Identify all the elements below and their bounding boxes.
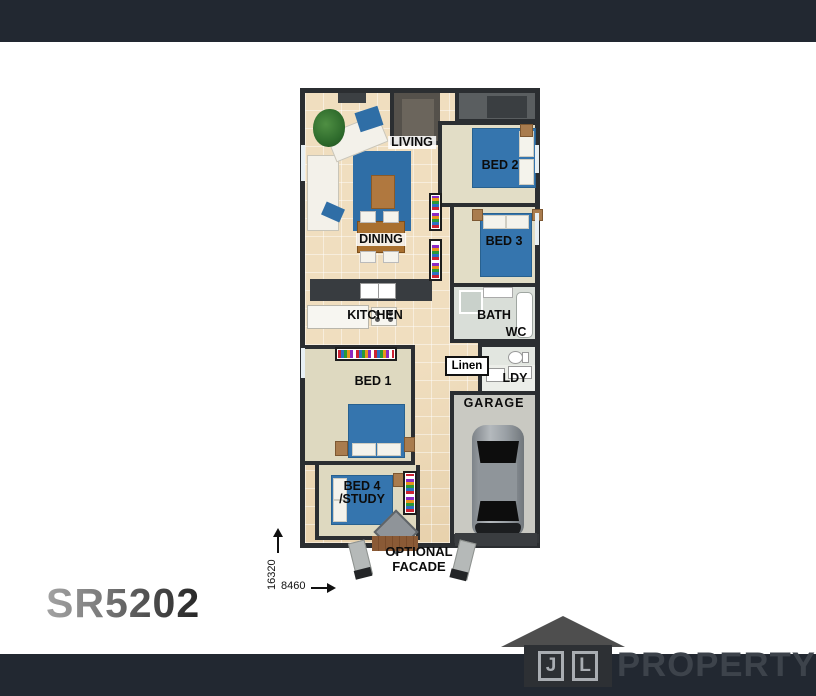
patio-floor bbox=[402, 99, 434, 137]
facade-label-line2: FACADE bbox=[385, 559, 452, 574]
dining-chair bbox=[360, 251, 376, 263]
window-right-bed3 bbox=[535, 213, 539, 245]
logo-letter-l: L bbox=[572, 651, 598, 681]
bed1-pillow bbox=[352, 443, 376, 456]
horizontal-dimension: 8460 bbox=[281, 580, 305, 592]
plant bbox=[313, 109, 345, 147]
dining-chair bbox=[383, 251, 399, 263]
bed4-label-line2: /STUDY bbox=[339, 493, 385, 506]
bed1-pillow bbox=[377, 443, 401, 456]
bed4-wardrobe bbox=[403, 471, 417, 515]
window-left-bed1 bbox=[301, 348, 305, 378]
bed1-label: BED 1 bbox=[355, 375, 392, 388]
bed3-pillow bbox=[483, 215, 506, 229]
linen-label-text: Linen bbox=[452, 360, 483, 372]
logo-name: PROPERTY bbox=[617, 646, 816, 685]
bed1-wardrobe bbox=[335, 347, 397, 361]
kitchen-label: KITCHEN bbox=[347, 309, 403, 322]
kitchen-sink bbox=[360, 283, 396, 299]
vanity bbox=[483, 287, 513, 298]
dining-chair bbox=[360, 211, 376, 223]
dining-label: DINING bbox=[356, 233, 406, 246]
window-right-bed2 bbox=[535, 145, 539, 173]
bed3-side-table bbox=[472, 209, 483, 221]
car-windshield bbox=[477, 441, 519, 463]
vertical-dim-arrow-icon bbox=[273, 528, 283, 537]
plan-code: SR5202 bbox=[46, 580, 200, 627]
patio-window bbox=[487, 96, 527, 118]
bed1-side-table bbox=[335, 441, 348, 456]
kitchen-island bbox=[310, 279, 432, 301]
dining-chair bbox=[383, 211, 399, 223]
wardrobe-clothes bbox=[432, 242, 439, 278]
bed2-label: BED 2 bbox=[482, 159, 519, 172]
wardrobe-clothes bbox=[338, 350, 394, 358]
pillar-base bbox=[354, 567, 373, 580]
coffee-table bbox=[371, 175, 395, 209]
facade-label-line1: OPTIONAL bbox=[385, 544, 452, 559]
toilet bbox=[508, 351, 523, 364]
wc-label: WC bbox=[506, 326, 527, 339]
bed1-side-table bbox=[404, 437, 415, 452]
toilet-cistern bbox=[522, 352, 529, 363]
optional-facade-label: OPTIONAL FACADE bbox=[385, 544, 452, 574]
bed2-pillow bbox=[519, 159, 534, 185]
laundry-label: LDY bbox=[503, 372, 528, 385]
vertical-dimension: 16320 bbox=[266, 550, 278, 590]
bath-label: BATH bbox=[477, 309, 511, 322]
hall-wardrobe-bed3 bbox=[429, 239, 442, 281]
bed3-pillow bbox=[506, 215, 529, 229]
house-roof-icon bbox=[501, 616, 625, 647]
linen-label: Linen bbox=[445, 356, 489, 376]
sink-basin bbox=[361, 284, 379, 298]
garage-room bbox=[450, 391, 535, 543]
rear-patio bbox=[455, 93, 535, 123]
living-label: LIVING bbox=[388, 136, 436, 149]
wardrobe-clothes bbox=[406, 474, 414, 512]
bed1-room bbox=[305, 345, 415, 465]
bed1-bed bbox=[348, 404, 405, 458]
wardrobe-clothes bbox=[432, 196, 439, 228]
garage-label: GARAGE bbox=[464, 397, 525, 410]
car-roof bbox=[479, 463, 517, 501]
hall-wardrobe-bed2 bbox=[429, 193, 442, 231]
floor-plan: LIVING BED 2 BED 3 DINING KITCHEN BATH W… bbox=[300, 88, 540, 548]
logo-letter-j: J bbox=[538, 651, 564, 681]
car bbox=[472, 425, 524, 537]
horizontal-dim-line bbox=[311, 587, 327, 589]
top-banner-bar bbox=[0, 0, 816, 42]
window-left-living bbox=[301, 145, 305, 181]
bed4-label: BED 4 /STUDY bbox=[339, 480, 385, 506]
house-logo-icon: J L bbox=[524, 645, 612, 687]
page: LIVING BED 2 BED 3 DINING KITCHEN BATH W… bbox=[0, 0, 816, 696]
horizontal-dim-arrow-icon bbox=[327, 583, 336, 593]
car-rear-window bbox=[477, 501, 519, 521]
sink-basin bbox=[379, 284, 396, 298]
bed2-side-table bbox=[520, 124, 533, 137]
bed3-label: BED 3 bbox=[486, 235, 523, 248]
tv-unit bbox=[338, 93, 366, 103]
